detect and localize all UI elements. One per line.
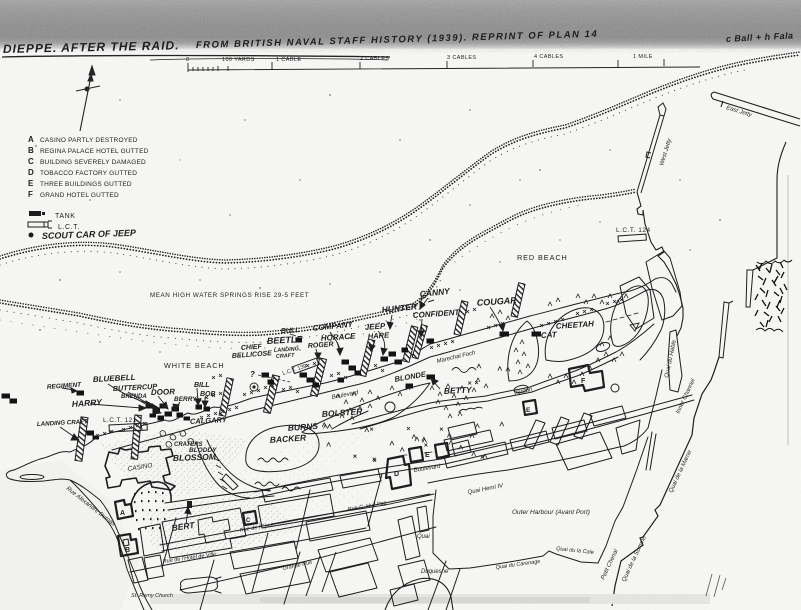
svg-text:REGINA PALACE HOTEL GUTTED: REGINA PALACE HOTEL GUTTED: [40, 148, 149, 155]
svg-text:RED BEACH: RED BEACH: [517, 253, 568, 262]
svg-text:4 CABLES: 4 CABLES: [534, 54, 564, 60]
svg-text:A: A: [28, 135, 34, 144]
svg-text:BERRY: BERRY: [174, 396, 197, 403]
svg-text:TANK: TANK: [55, 213, 76, 220]
svg-text:BUILDING SEVERELY DAMAGED: BUILDING SEVERELY DAMAGED: [40, 159, 146, 166]
svg-text:HARE: HARE: [368, 330, 391, 341]
svg-text:0: 0: [186, 57, 189, 63]
svg-text:BILL: BILL: [194, 382, 210, 389]
svg-text:BETTY: BETTY: [444, 384, 474, 396]
svg-text:?: ?: [250, 370, 255, 379]
svg-text:D: D: [394, 471, 399, 478]
svg-text:E: E: [526, 407, 531, 414]
svg-text:E: E: [28, 179, 34, 188]
svg-text:MEAN HIGH WATER SPRINGS RI: MEAN HIGH WATER SPRINGS RISE 29-5 FEET: [150, 292, 309, 299]
svg-text:B: B: [28, 146, 34, 155]
svg-text:C: C: [246, 518, 251, 524]
svg-text:C: C: [28, 157, 34, 166]
svg-text:CAT: CAT: [541, 330, 558, 340]
svg-text:3 CABLES: 3 CABLES: [447, 55, 477, 61]
svg-text:BURNS: BURNS: [287, 421, 318, 433]
svg-text:CASINO PARTLY DESTROYED: CASINO PARTLY DESTROYED: [40, 137, 138, 144]
svg-text:THREE BUILDINGS GUTTED: THREE BUILDINGS GUTTED: [40, 181, 132, 188]
svg-text:B: B: [125, 547, 130, 554]
svg-text:TOBACCO FACTORY GUTTED: TOBACCO FACTORY GUTTED: [40, 170, 137, 177]
svg-text:L.C.T. 121: L.C.T. 121: [103, 417, 137, 424]
svg-text:A: A: [120, 510, 125, 517]
svg-text:D: D: [28, 168, 34, 177]
svg-text:BRENDA: BRENDA: [121, 394, 147, 400]
svg-text:St. Remy Church: St. Remy Church: [131, 593, 173, 599]
svg-text:BLOSSOM: BLOSSOM: [173, 451, 217, 463]
svg-text:1 CABLE: 1 CABLE: [276, 57, 301, 63]
svg-text:1 MILE: 1 MILE: [633, 54, 653, 60]
svg-text:BOB: BOB: [200, 391, 216, 398]
svg-text:F: F: [581, 378, 586, 385]
svg-text:BULL: BULL: [281, 327, 300, 335]
svg-text:WHITE BEACH: WHITE BEACH: [164, 361, 225, 370]
svg-text:L.C.T. 124: L.C.T. 124: [616, 227, 651, 234]
svg-text:Duquesne: Duquesne: [421, 569, 449, 575]
svg-text:GRAND HOTEL GUTTED: GRAND HOTEL GUTTED: [40, 192, 119, 199]
svg-text:100 YARDS: 100 YARDS: [222, 57, 255, 63]
svg-text:2 CABLES: 2 CABLES: [360, 56, 390, 62]
svg-text:Outer Harbour (Avant Port): Outer Harbour (Avant Port): [512, 509, 590, 516]
svg-text:DOOR: DOOR: [151, 387, 176, 397]
svg-text:Quai: Quai: [417, 534, 430, 540]
svg-text:BEETLE: BEETLE: [267, 334, 304, 346]
svg-text:F: F: [28, 190, 33, 199]
